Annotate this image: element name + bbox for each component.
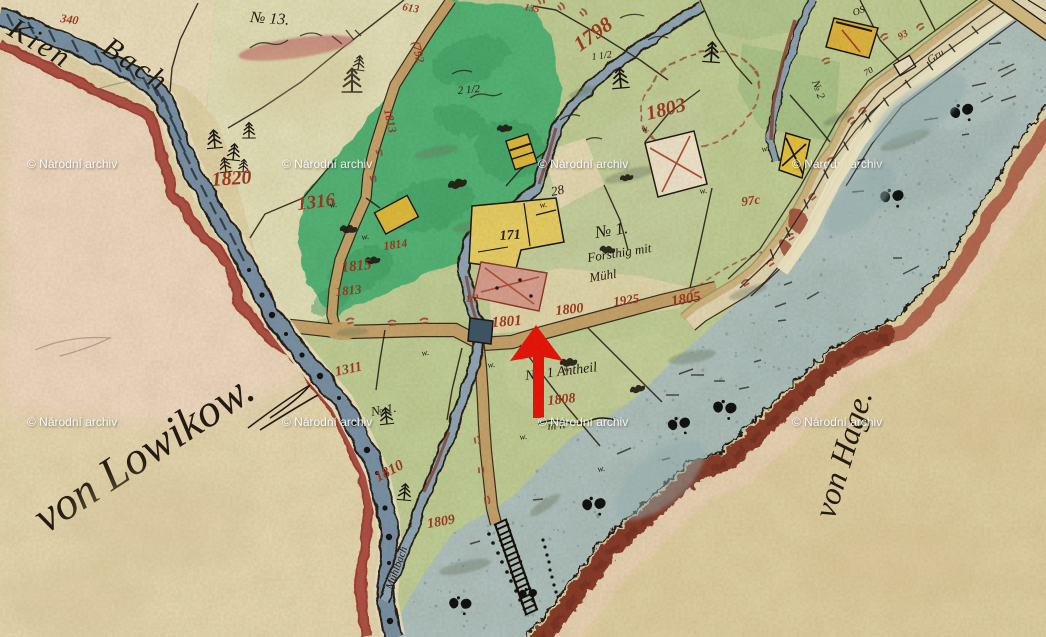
svg-text:© Národní archiv: © Národní archiv xyxy=(538,415,628,429)
svg-text:© Národní archiv: © Národní archiv xyxy=(282,415,372,429)
svg-text:© Národní archiv: © Národní archiv xyxy=(792,415,882,429)
svg-text:© Národní archiv: © Národní archiv xyxy=(27,157,117,171)
svg-text:© Národní archiv: © Národní archiv xyxy=(282,157,372,171)
svg-text:© Národní archiv: © Národní archiv xyxy=(27,415,117,429)
svg-text:© Národní archiv: © Národní archiv xyxy=(538,157,628,171)
